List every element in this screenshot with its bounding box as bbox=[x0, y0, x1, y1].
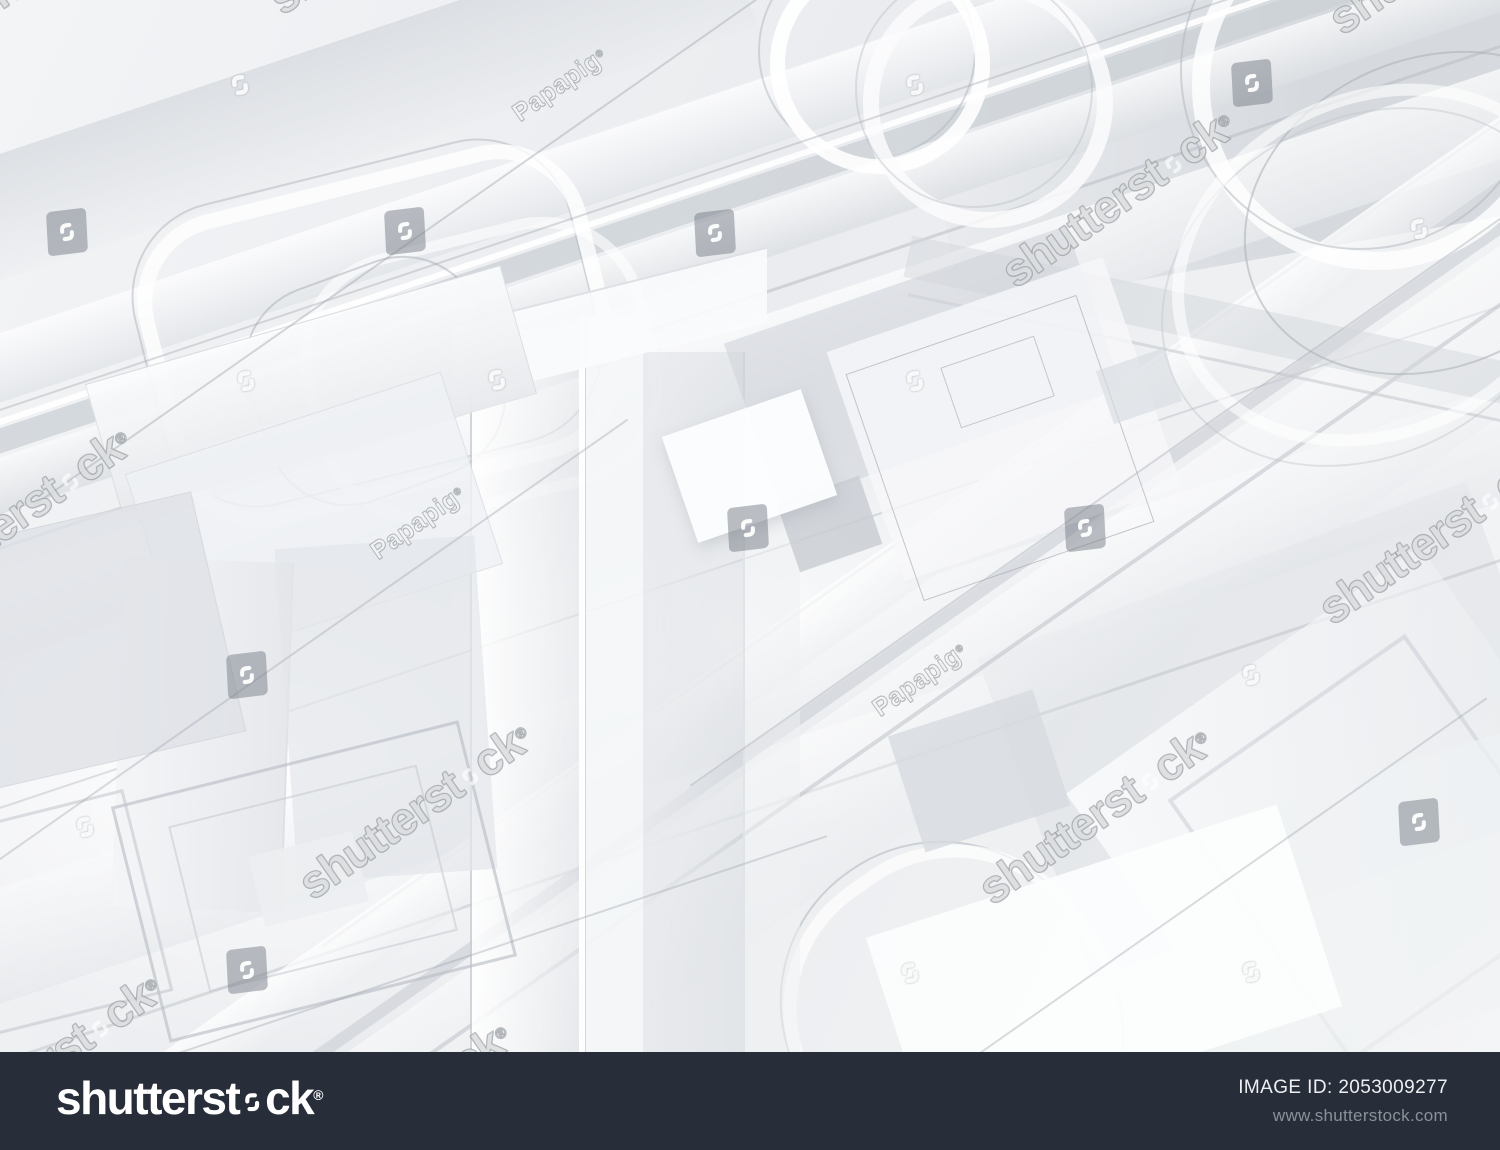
shutter-mark-icon bbox=[240, 1090, 264, 1114]
logo-text-suffix: ck bbox=[265, 1072, 313, 1124]
shutterstock-mark-icon bbox=[225, 70, 255, 100]
shutterstock-mark-icon bbox=[70, 812, 100, 842]
shutterstock-mark-icon bbox=[1404, 214, 1434, 244]
shutterstock-mark-badge bbox=[727, 504, 769, 553]
shutterstock-mark-icon bbox=[895, 958, 925, 988]
stock-image-preview: shutterstck® shutterstck® shutterstck® s… bbox=[0, 0, 1500, 1150]
shutter-mark-icon bbox=[702, 220, 727, 247]
shutterstock-mark-badge bbox=[226, 946, 268, 995]
shutterstock-mark-badge bbox=[1064, 504, 1106, 553]
shutterstock-mark-icon bbox=[900, 70, 930, 100]
registered-mark: ® bbox=[313, 1088, 323, 1103]
website-url: www.shutterstock.com bbox=[1273, 1106, 1448, 1126]
shutterstock-mark-icon bbox=[482, 365, 512, 395]
shutterstock-mark-badge bbox=[694, 209, 736, 258]
shutterstock-logo: shutterstck® bbox=[56, 1075, 323, 1121]
glass-slab bbox=[585, 315, 644, 1052]
shutterstock-mark-badge bbox=[226, 651, 268, 700]
image-info: IMAGE ID: 2053009277 www.shutterstock.co… bbox=[1238, 1077, 1448, 1126]
shutterstock-mark-icon bbox=[1236, 957, 1266, 987]
shutter-mark-icon bbox=[735, 515, 760, 542]
shutterstock-mark-icon bbox=[231, 366, 261, 396]
logo-text-prefix: shutterst bbox=[56, 1072, 239, 1124]
shutter-mark-icon bbox=[54, 219, 79, 246]
shutterstock-mark-badge bbox=[1231, 59, 1273, 108]
shutter-mark-icon bbox=[1072, 515, 1097, 542]
shutter-mark-icon bbox=[234, 662, 259, 689]
glass-slab-highlight bbox=[579, 315, 585, 1052]
shutterstock-mark-badge bbox=[1398, 798, 1440, 847]
shutterstock-mark-icon bbox=[900, 366, 930, 396]
shutter-mark-icon bbox=[1239, 70, 1264, 97]
image-id: IMAGE ID: 2053009277 bbox=[1238, 1077, 1448, 1099]
shutter-mark-icon bbox=[1406, 809, 1431, 836]
shutter-mark-icon bbox=[392, 218, 417, 245]
shutterstock-mark-badge bbox=[46, 208, 88, 257]
shutterstock-mark-badge bbox=[384, 207, 426, 256]
bottom-info-bar: shutterstck® IMAGE ID: 2053009277 www.sh… bbox=[0, 1052, 1500, 1150]
shutterstock-mark-icon bbox=[1236, 660, 1266, 690]
shutter-mark-icon bbox=[234, 957, 259, 984]
